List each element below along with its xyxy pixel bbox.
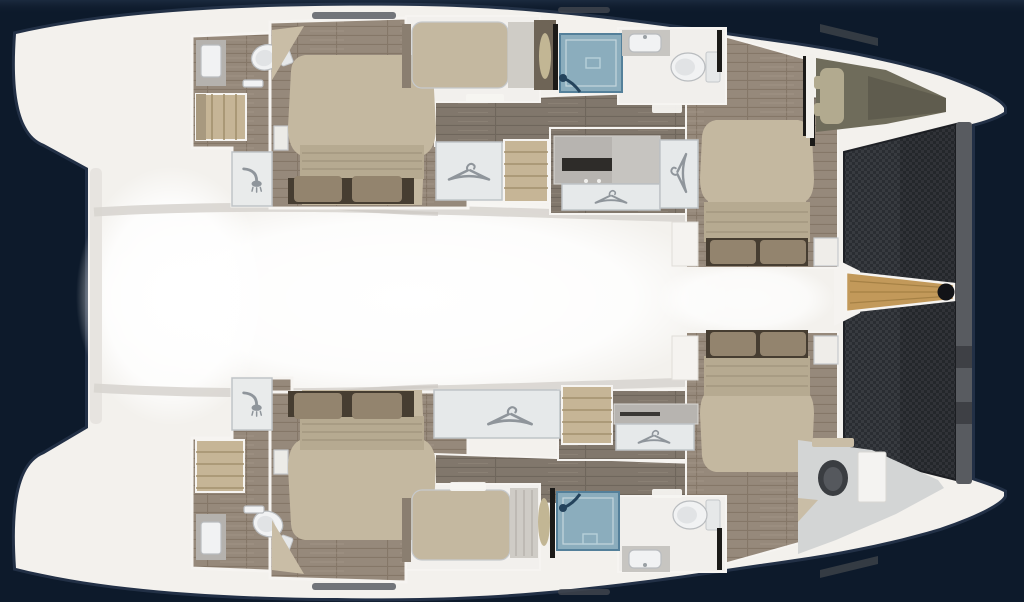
shower-pan: [232, 378, 272, 430]
floor-plan-canvas: [0, 0, 1024, 602]
bolster: [538, 498, 550, 546]
bed-foot-quilt: [300, 145, 424, 179]
shower-pan: [232, 152, 272, 206]
hanging-locker: [660, 140, 698, 208]
forepeak-pillow: [820, 68, 844, 124]
hanging-locker: [562, 184, 660, 210]
pillow: [352, 176, 402, 202]
berth-side-shelf: [508, 22, 534, 88]
pillow-tab: [814, 76, 824, 89]
beam-fitting: [956, 346, 972, 368]
door-leaf: [652, 104, 682, 113]
pillow: [760, 240, 806, 264]
bolster: [539, 33, 551, 79]
single-berth: [412, 490, 510, 560]
sink: [201, 45, 221, 77]
stairs-stringer: [196, 94, 206, 140]
hanging-locker: [616, 424, 694, 450]
aft-head-stairs: [196, 94, 246, 140]
dresser-slot: [620, 412, 660, 416]
sink: [201, 522, 221, 554]
bulkhead: [553, 24, 558, 90]
deck-hatch: [312, 12, 396, 19]
berth-trim: [402, 498, 411, 562]
berth-trim: [402, 24, 411, 88]
toilet: [673, 500, 720, 530]
bed-step-platform: [672, 336, 698, 380]
single-berth: [412, 22, 508, 88]
deck-hatch: [558, 589, 610, 595]
bulkhead: [803, 56, 806, 136]
shower-stall: [560, 34, 622, 92]
toilet-seat: [824, 467, 843, 491]
pillow: [352, 393, 402, 419]
bed-foot-quilt: [300, 416, 424, 450]
towel-rail: [244, 506, 264, 513]
aft-head-stairs: [196, 440, 244, 492]
door-leaf: [450, 482, 486, 491]
knob: [597, 179, 601, 183]
stairs: [562, 386, 612, 444]
forestay-beam: [956, 122, 972, 484]
pillow: [710, 332, 756, 356]
towel-rail: [243, 80, 263, 87]
bulkhead: [717, 528, 722, 570]
catamaran-floor-plan: [0, 0, 1024, 602]
deck-hatch: [558, 7, 610, 13]
nightstand: [274, 126, 288, 150]
knob: [584, 179, 588, 183]
faucet: [643, 35, 647, 39]
door-leaf: [466, 94, 504, 103]
stairs: [196, 440, 244, 492]
door-leaf: [652, 489, 682, 498]
wardrobe: [434, 390, 560, 438]
wardrobe: [436, 142, 502, 200]
bowsprit-end-fitting: [938, 284, 955, 301]
pillow: [760, 332, 806, 356]
pillow: [710, 240, 756, 264]
beam-fitting: [956, 402, 972, 424]
forepeak-bulkhead: [806, 54, 814, 138]
faucet: [643, 563, 647, 567]
bulkhead: [717, 30, 722, 72]
cabinet: [858, 452, 886, 502]
stairs: [504, 140, 548, 202]
dresser-slot: [562, 158, 612, 171]
shelf: [812, 438, 854, 447]
foredeck-highlight: [655, 261, 835, 337]
toilet-seat: [675, 59, 695, 76]
pillow-tab: [814, 103, 824, 116]
toilet: [671, 52, 720, 82]
dresser-top: [612, 137, 659, 183]
pillow: [294, 176, 342, 202]
nightstand: [814, 336, 838, 364]
nightstand: [274, 450, 288, 474]
deck-hatch: [312, 583, 396, 590]
shower-stall: [557, 492, 619, 550]
dark-toilet: [818, 460, 848, 496]
toilet-tank: [706, 500, 720, 530]
bulkhead: [550, 488, 555, 558]
toilet-seat: [677, 507, 697, 524]
companionway-stairs: [562, 386, 612, 444]
companionway-stairs: [504, 140, 548, 202]
bed-step-platform: [672, 222, 698, 266]
nightstand: [814, 238, 838, 266]
pillow: [294, 393, 342, 419]
